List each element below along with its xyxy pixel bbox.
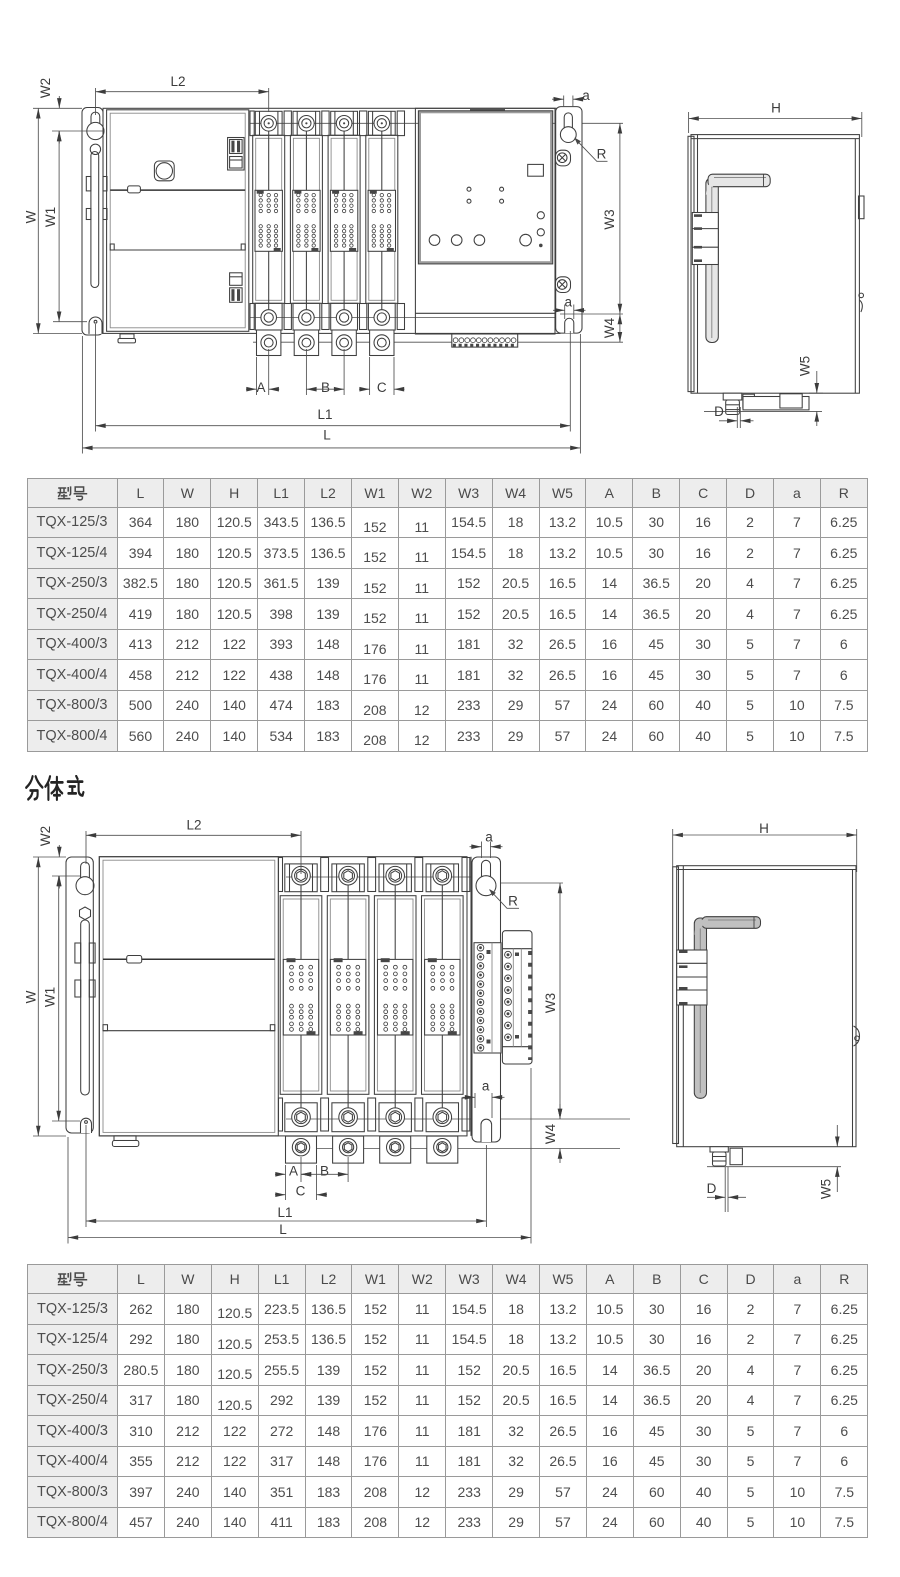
- svg-text:A: A: [256, 380, 265, 395]
- svg-text:L1: L1: [317, 407, 332, 422]
- svg-text:W3: W3: [602, 209, 617, 229]
- svg-text:W1: W1: [43, 207, 58, 227]
- svg-text:C: C: [296, 1184, 306, 1199]
- svg-text:a: a: [582, 88, 590, 103]
- svg-text:W5: W5: [798, 356, 813, 376]
- svg-text:A: A: [289, 1163, 298, 1178]
- svg-text:W: W: [23, 210, 38, 223]
- svg-text:B: B: [320, 1163, 329, 1178]
- svg-text:R: R: [597, 147, 607, 162]
- svg-text:W5: W5: [819, 1179, 834, 1199]
- svg-text:H: H: [759, 821, 769, 836]
- svg-text:L2: L2: [170, 74, 185, 89]
- svg-text:W2: W2: [38, 826, 53, 846]
- svg-text:a: a: [485, 830, 493, 845]
- svg-text:W2: W2: [38, 78, 53, 98]
- svg-text:D: D: [714, 404, 724, 419]
- svg-text:D: D: [707, 1181, 717, 1196]
- svg-text:a: a: [565, 295, 573, 310]
- svg-text:L: L: [279, 1222, 287, 1237]
- svg-text:W: W: [24, 990, 39, 1003]
- svg-text:W3: W3: [543, 993, 558, 1013]
- svg-text:H: H: [771, 101, 781, 116]
- svg-text:L1: L1: [277, 1205, 292, 1220]
- svg-text:a: a: [482, 1079, 490, 1094]
- svg-text:L2: L2: [186, 818, 201, 833]
- svg-text:W1: W1: [42, 987, 57, 1007]
- svg-text:R: R: [508, 894, 518, 909]
- svg-text:C: C: [377, 380, 387, 395]
- svg-text:W4: W4: [602, 317, 617, 338]
- svg-text:L: L: [323, 428, 331, 443]
- svg-text:W4: W4: [543, 1123, 558, 1144]
- svg-text:B: B: [321, 380, 330, 395]
